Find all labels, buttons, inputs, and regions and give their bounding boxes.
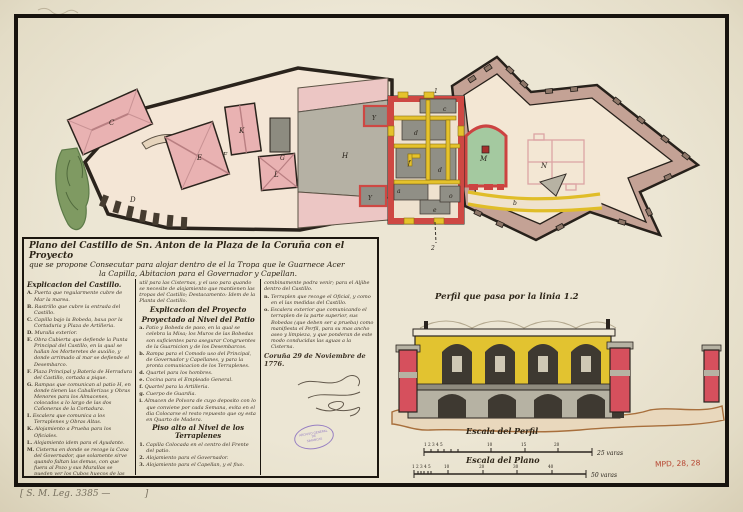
room-Y-bottom bbox=[360, 186, 386, 206]
detached-wall-fragment bbox=[702, 345, 721, 402]
legend-item: M. Cisterna en donde se recoge la Cava d… bbox=[34, 447, 132, 475]
legend-item: n. Terraplen que recoge el Oficial, y co… bbox=[271, 294, 374, 306]
legend-item: F. Plaza Principal y Bateria de Herradur… bbox=[34, 369, 132, 381]
perfil-tick-20: 20 bbox=[554, 442, 560, 447]
label-line-1: 1 bbox=[434, 88, 438, 95]
label-b: b bbox=[513, 200, 517, 207]
left-tower bbox=[396, 345, 420, 412]
legend-item: E. Obra Cubierta que defiende la Punta P… bbox=[34, 337, 132, 367]
label-G: G bbox=[280, 155, 285, 162]
plano-tick-10: 10 bbox=[444, 464, 450, 469]
legend-item: o. Escalera exterior que comunicando el … bbox=[271, 307, 374, 350]
label-line-2: 2 bbox=[430, 245, 435, 252]
label-o: o bbox=[449, 193, 453, 200]
legend-item: d. Quartel para los hombres. bbox=[146, 370, 257, 376]
title-line-3: la Capilla, Abitacion para el Governador… bbox=[29, 270, 372, 278]
escala-plano-label: Escala del Plano bbox=[466, 455, 540, 465]
plano-tick-cluster: 1 2 3 4 5 bbox=[412, 464, 431, 469]
piso-alto-heading: Piso alto al Nivel de los Terraplenes bbox=[139, 424, 257, 441]
column-explicacion-proyecto: util para las Cisternas, y el uso para q… bbox=[135, 279, 260, 475]
proyecto-heading: Explicacion del Proyecto bbox=[139, 306, 257, 315]
perfil-tick-15: 15 bbox=[521, 442, 527, 447]
legend-item: 1. Capilla Colocada en el centro del Fre… bbox=[146, 442, 257, 454]
label-d1: d bbox=[414, 130, 418, 137]
annex-gray bbox=[270, 118, 290, 152]
perfil-heading: Perfil que pasa por la linia 1.2 bbox=[435, 292, 578, 302]
legend-item: 2. Alojamiento para el Governador. bbox=[146, 455, 257, 461]
legend-item: e. Cocina para el Empleado General. bbox=[146, 377, 257, 383]
legend-item: K. Alojamiento a Prueba para los Oficial… bbox=[34, 426, 132, 438]
plano-end-label: 50 varas bbox=[591, 472, 617, 479]
proyecto-intro: util para las Cisternas, y el uso para q… bbox=[139, 280, 257, 304]
legend-item: D. Muralla exterior. bbox=[34, 330, 132, 336]
label-L: L bbox=[273, 171, 279, 179]
legend-item: A. Puerta que regularmente cubre de Mar … bbox=[34, 290, 132, 302]
scale-bar-plano: 1 2 3 4 5 10 20 30 40 50 varas bbox=[412, 464, 617, 479]
legajo-note: [ S. M. Leg. 3385 — ] bbox=[20, 489, 148, 499]
page-title: Plano del Castillo de Sn. Anton de la Pl… bbox=[24, 239, 377, 279]
legend-item: i. Almacen de Polvora de cuyo deposito c… bbox=[146, 398, 257, 422]
plano-tick-40: 40 bbox=[548, 464, 554, 469]
legend-item: g. Cuerpo de Guardia. bbox=[146, 391, 257, 397]
label-e: e bbox=[433, 207, 437, 214]
label-N: N bbox=[540, 162, 548, 170]
escala-perfil-label: Escala del Perfil bbox=[466, 426, 538, 436]
legend-item: 3. Alojamiento para el Capellan, y el fi… bbox=[146, 462, 257, 468]
section-line-1-2 bbox=[435, 222, 436, 243]
legend-item: a. Patio y Bobeda de paso, en la qual se… bbox=[146, 325, 257, 349]
title-line-1: Plano del Castillo de Sn. Anton de la Pl… bbox=[29, 241, 372, 261]
label-F: F bbox=[222, 152, 228, 159]
perfil-end-label: 25 varas bbox=[596, 450, 623, 457]
room-Y-top bbox=[364, 106, 388, 126]
legend-item: L. Alojamiento idem para el Ayudante. bbox=[34, 440, 132, 446]
label-M: M bbox=[479, 155, 488, 163]
castillo-heading: Explicacion del Castillo. bbox=[27, 281, 132, 290]
label-C: C bbox=[109, 119, 115, 127]
label-K: K bbox=[238, 127, 245, 135]
roof-slab bbox=[413, 329, 615, 336]
col3-intro: combinamente podra venir; para el Aljibe… bbox=[264, 280, 374, 292]
right-tower bbox=[607, 342, 633, 412]
label-d2: d bbox=[438, 167, 442, 174]
section-drawing bbox=[392, 319, 724, 432]
rocks-vegetation bbox=[56, 148, 89, 230]
label-H: H bbox=[341, 152, 349, 160]
pencil-scribble bbox=[38, 8, 78, 14]
label-D: D bbox=[129, 196, 136, 204]
manuscript-sheet: C E K L D F G H Y Y c d d f a e o b M N … bbox=[0, 0, 743, 512]
legend-item: f. Quartel para la Artilleria. bbox=[146, 384, 257, 390]
mpd-reference: MPD, 28, 28 bbox=[655, 458, 701, 469]
perfil-tick-10: 10 bbox=[487, 442, 493, 447]
legend-item: b. Rampa para el Comodo uso del Principa… bbox=[146, 351, 257, 369]
column-explicacion-castillo: Explicacion del Castillo. A. Puerta que … bbox=[24, 279, 135, 475]
label-a: a bbox=[397, 188, 401, 195]
roof-scallops bbox=[420, 321, 616, 328]
label-E: E bbox=[196, 154, 202, 162]
floor-band bbox=[411, 384, 617, 390]
legend-item: I. Escalera que comunica a los Terraplen… bbox=[34, 413, 132, 425]
proyecto-subheading: Proyectado al Nivel del Patio bbox=[139, 316, 257, 325]
legend-item: G. Rampas que comunican al patio H, en d… bbox=[34, 382, 132, 412]
perfil-tick-cluster: 1 2 3 4 5 bbox=[424, 442, 443, 447]
dateline: Coruña 29 de Noviembre de 1776. bbox=[264, 353, 374, 369]
legend-item: C. Capilla bajo la Bobeda, baxa por la C… bbox=[34, 317, 132, 329]
legend-item: B. Rastrillo que cubre la entrada del Ca… bbox=[34, 304, 132, 316]
